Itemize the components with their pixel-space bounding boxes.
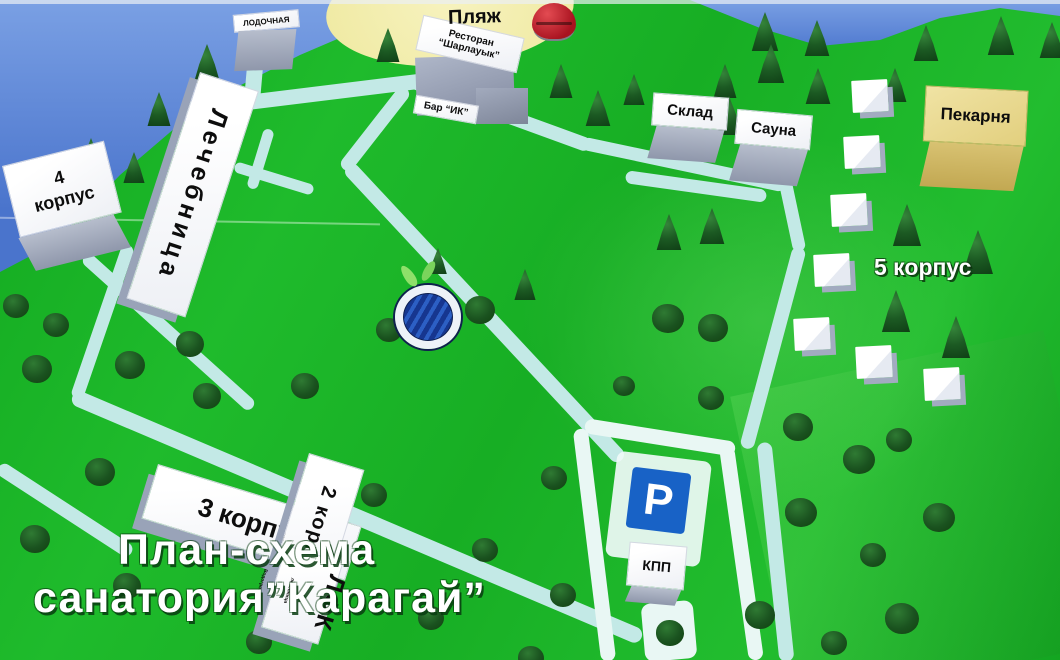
beach-kiosk-band: [536, 22, 572, 25]
boathouse-building: ЛОДОЧНАЯ: [233, 11, 301, 71]
cottage-building: [830, 193, 868, 227]
parking-sign: P: [626, 467, 692, 535]
site-plan-map: 5 корпус ЛОДОЧНАЯ Ресторан “Шарлауык” Ба…: [0, 0, 1060, 660]
bakery-building: Пекарня: [920, 85, 1028, 191]
page-title-line2: санатория”Карагай”: [33, 574, 486, 623]
cottage-building: [851, 79, 889, 113]
warehouse-wall: [647, 126, 724, 163]
restaurant-annex-wall: [476, 88, 528, 124]
beach-kiosk-dome: [532, 3, 576, 39]
restaurant-building: Ресторан “Шарлауык” Бар “ИК”: [412, 26, 516, 81]
fountain: [395, 285, 461, 349]
cottage-building: [843, 135, 881, 169]
boathouse-wall: [234, 29, 296, 71]
warehouse-building: Склад: [649, 92, 729, 163]
cottage-building: [923, 367, 961, 401]
beach-label: Пляж: [448, 5, 502, 30]
sauna-wall: [729, 144, 808, 186]
page-title-line1: План-схема: [118, 526, 375, 575]
checkpoint-building: КПП: [624, 542, 687, 607]
parking-sign-letter: P: [641, 474, 676, 527]
checkpoint-label: КПП: [626, 542, 688, 591]
warehouse-label: Склад: [651, 92, 729, 130]
bakery-wall: [919, 142, 1023, 191]
korpus5-label: 5 корпус: [874, 254, 971, 281]
cottage-building: [855, 345, 893, 379]
cottage-building: [813, 253, 851, 287]
sauna-building: Сауна: [731, 109, 813, 187]
cottage-building: [793, 317, 831, 351]
bakery-label: Пекарня: [923, 85, 1029, 146]
